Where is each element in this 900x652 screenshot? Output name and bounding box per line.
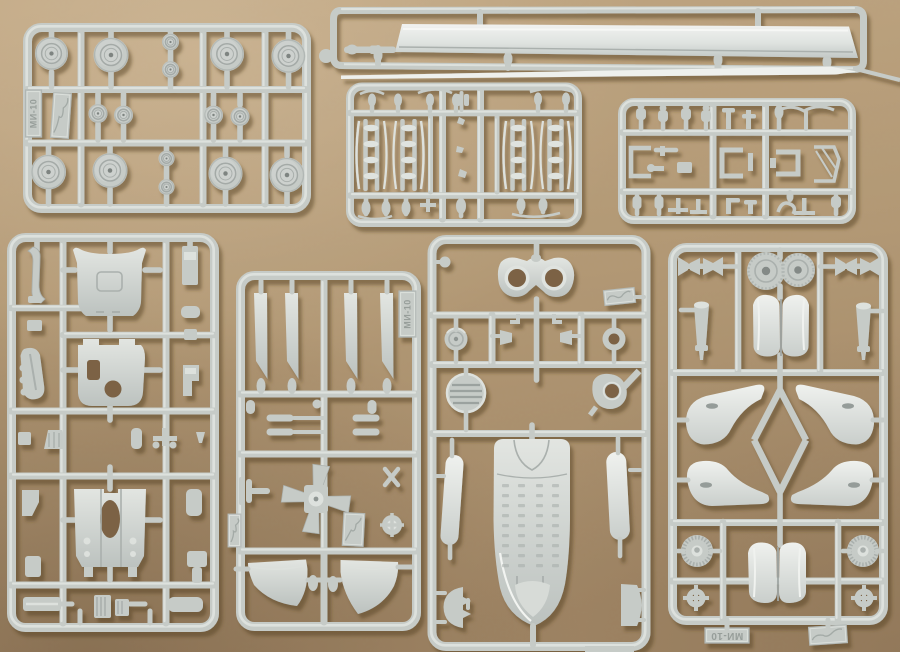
svg-text:МИ-10: МИ-10: [403, 299, 413, 328]
svg-text:МИ-10: МИ-10: [29, 99, 39, 128]
svg-text:МИ-10: МИ-10: [711, 630, 743, 641]
